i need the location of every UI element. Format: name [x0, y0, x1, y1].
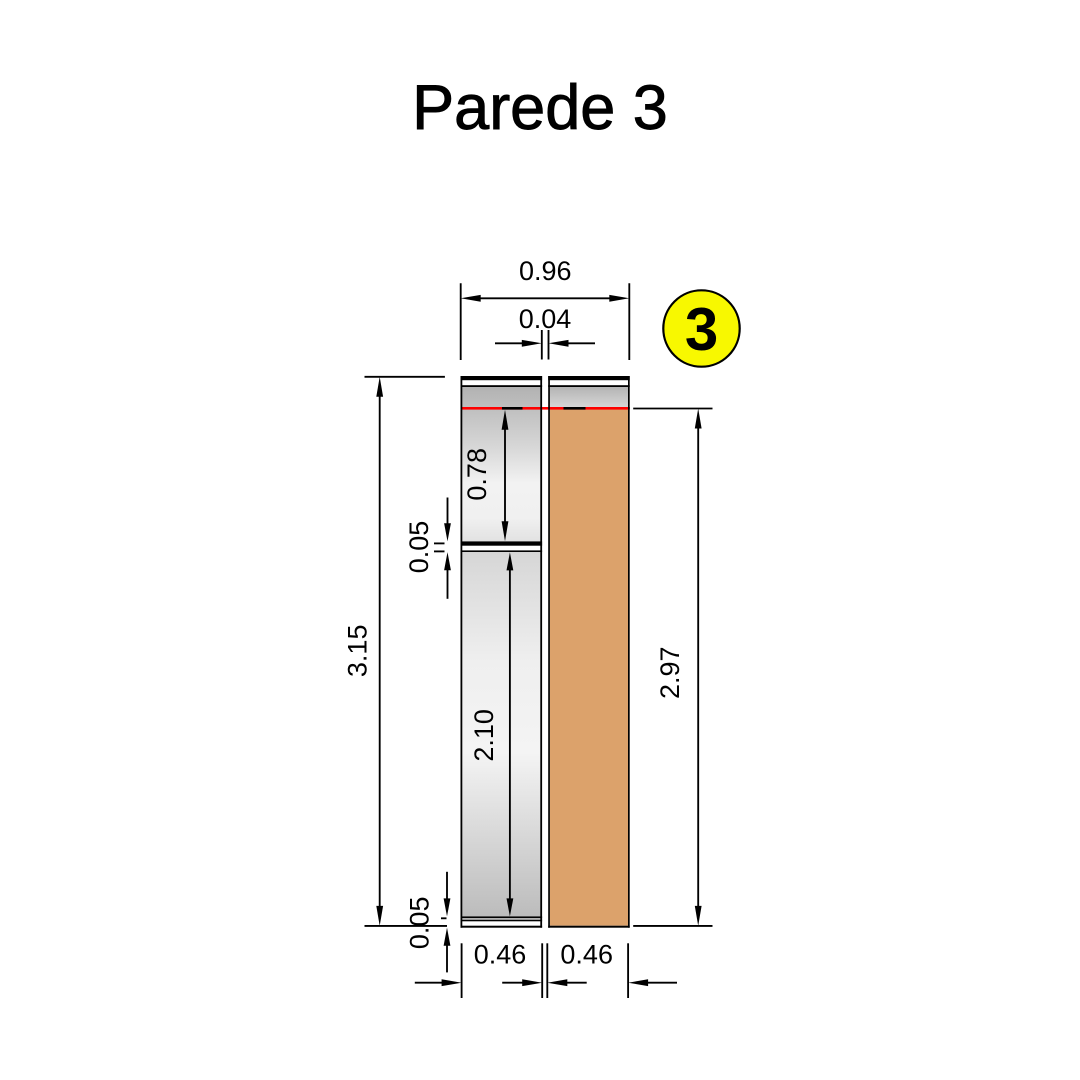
- svg-text:0.04: 0.04: [519, 304, 572, 334]
- svg-text:0.46: 0.46: [560, 940, 613, 970]
- svg-text:Parede 3: Parede 3: [412, 73, 668, 143]
- svg-text:2.97: 2.97: [655, 646, 685, 699]
- svg-text:0.05: 0.05: [405, 897, 435, 950]
- svg-text:0.05: 0.05: [404, 521, 434, 574]
- svg-text:3: 3: [685, 296, 718, 363]
- svg-text:3.15: 3.15: [343, 625, 373, 678]
- svg-text:0.46: 0.46: [474, 940, 527, 970]
- svg-text:0.96: 0.96: [519, 256, 572, 286]
- svg-text:2.10: 2.10: [469, 709, 499, 762]
- svg-text:0.78: 0.78: [462, 448, 492, 501]
